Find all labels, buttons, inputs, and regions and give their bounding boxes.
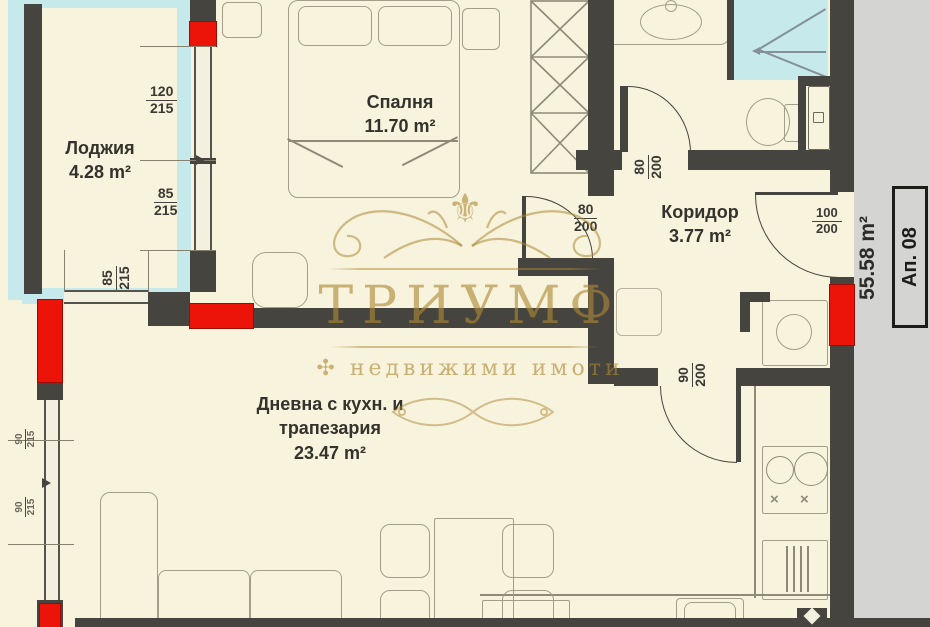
red-wall-segment [40, 604, 60, 627]
window [194, 46, 212, 158]
faucet [665, 0, 677, 12]
wall-segment [727, 0, 734, 80]
dimension-arrow-icon [196, 155, 205, 165]
wall-segment [830, 0, 854, 192]
shower-door-arrow-icon [752, 47, 760, 55]
cabinet-line [786, 546, 788, 592]
wall-segment [830, 345, 854, 627]
wall-segment [190, 0, 216, 22]
burner [794, 452, 828, 486]
room-area: 4.28 m² [25, 160, 175, 184]
door-arc-bathroom [628, 86, 691, 153]
watermark-tagline-text: недвижими имоти [350, 356, 624, 381]
floor-plan: × × 120 215 85 215 85 215 80 2 [0, 0, 930, 627]
cabinet-line [793, 546, 795, 592]
room-name: Лоджия [25, 136, 175, 160]
dimension-line [64, 250, 65, 292]
dimension-west-window-b: 90 215 [14, 486, 37, 528]
room-label-loggia: Лоджия 4.28 m² [25, 136, 175, 185]
pillow [378, 6, 452, 46]
wall-segment [740, 292, 750, 332]
watermark-divider [330, 346, 600, 348]
red-wall-segment [190, 304, 253, 328]
burner [766, 456, 794, 484]
pillow [298, 6, 372, 46]
nightstand [222, 2, 262, 38]
dimension-loggia-window-top: 120 215 [146, 84, 177, 116]
shower [734, 0, 828, 80]
dimension-west-window-a: 90 215 [14, 418, 37, 460]
room-label-bedroom: Спалня 11.70 m² [330, 90, 470, 139]
dimension-entry-door: 100 200 [812, 206, 842, 236]
wall-segment [830, 277, 854, 285]
dimension-arrow-icon [42, 478, 51, 488]
dimension-living-door: 90 200 [676, 352, 708, 398]
wall-segment [576, 150, 622, 170]
chair [380, 524, 430, 578]
wall-segment [37, 380, 63, 400]
dimension-line [140, 46, 216, 47]
dimension-line [140, 250, 216, 251]
red-wall-segment [830, 285, 854, 345]
total-area-label: 55.58 m² [856, 164, 880, 352]
watermark-tagline: ✣ недвижими имоти [305, 356, 635, 381]
wardrobe-drawing [530, 0, 590, 174]
wall-segment [190, 250, 216, 292]
burner-mark: × [770, 492, 779, 507]
dimension-bathroom-door: 80 200 [632, 144, 664, 190]
sofa-chaise [100, 492, 158, 627]
room-area: 23.47 m² [225, 441, 435, 465]
window [194, 164, 212, 250]
room-area: 11.70 m² [330, 114, 470, 138]
red-wall-segment [190, 22, 216, 46]
dimension-line [8, 544, 74, 545]
washing-machine-drum [776, 314, 812, 350]
cabinet-line [800, 546, 802, 592]
burner-mark: × [800, 492, 809, 507]
kitchen-cabinet [762, 540, 828, 600]
radiator-valve [813, 112, 824, 123]
window [44, 398, 60, 602]
red-wall-segment [38, 300, 62, 382]
room-name: Спалня [330, 90, 470, 114]
watermark-tagline-mark: ✣ [316, 356, 338, 381]
nightstand [462, 8, 500, 50]
wardrobe [530, 0, 590, 174]
insulation-strip [8, 0, 24, 300]
room-area: 3.77 m² [625, 224, 775, 248]
dimension-loggia-south-window: 85 215 [100, 250, 132, 306]
dimension-line [148, 250, 149, 292]
counter-edge [754, 386, 756, 598]
watermark-flourish-bottom-icon [388, 392, 558, 432]
watermark-brand: ТРИУМФ [295, 276, 645, 336]
wall-segment [148, 292, 190, 326]
room-name: Коридор [625, 200, 775, 224]
chair [502, 524, 554, 578]
room-label-corridor: Коридор 3.77 m² [625, 200, 775, 249]
dimension-loggia-window-bottom: 85 215 [152, 186, 179, 218]
blanket-line [288, 140, 458, 142]
apartment-number-badge: Ап. 08 [892, 186, 928, 328]
wall-segment [736, 368, 832, 386]
wall-segment [798, 76, 806, 156]
door-leaf-bathroom [620, 86, 628, 152]
watermark-divider [328, 268, 603, 270]
wall-segment [688, 150, 832, 170]
fleur-de-lis-icon: ⚜ [440, 186, 490, 232]
cabinet-line [807, 546, 809, 592]
